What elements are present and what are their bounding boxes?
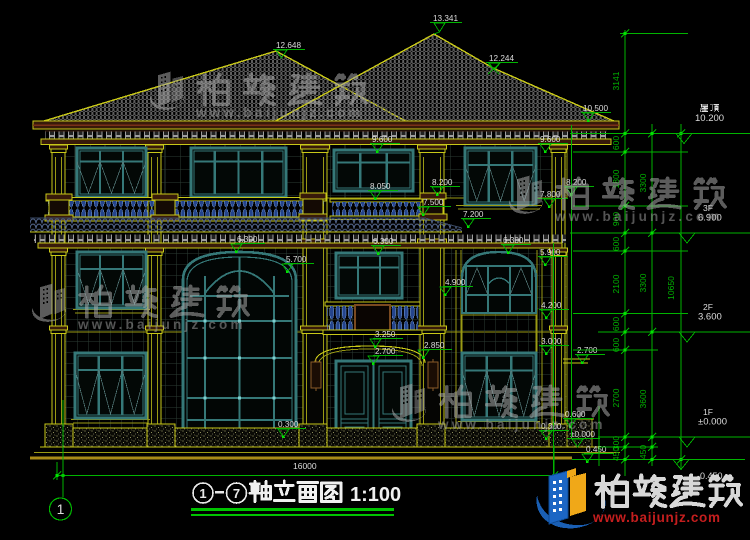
svg-text:8.050: 8.050 [370, 182, 391, 191]
svg-text:2F: 2F [703, 302, 713, 312]
svg-text:1: 1 [199, 486, 206, 501]
svg-text:www.baijunjz.com: www.baijunjz.com [554, 209, 723, 224]
svg-text:3141: 3141 [611, 71, 621, 90]
svg-text:600: 600 [611, 338, 621, 352]
svg-text:10.500: 10.500 [583, 104, 608, 113]
svg-text:1: 1 [57, 501, 65, 517]
svg-text:600: 600 [611, 136, 621, 150]
svg-text:6.300: 6.300 [237, 235, 258, 244]
svg-text:2.700: 2.700 [577, 346, 598, 355]
svg-text:0.300: 0.300 [278, 420, 299, 429]
svg-text:10.200: 10.200 [695, 113, 724, 124]
svg-text:2700: 2700 [611, 388, 621, 407]
svg-text:16000: 16000 [293, 461, 317, 471]
svg-text:6.300: 6.300 [503, 236, 524, 245]
svg-text:450: 450 [638, 445, 648, 459]
svg-text:2100: 2100 [611, 274, 621, 293]
svg-text:9.600: 9.600 [540, 135, 561, 144]
svg-text:1:100: 1:100 [350, 484, 401, 506]
svg-text:1F: 1F [703, 407, 713, 417]
svg-text:±0.000: ±0.000 [698, 417, 727, 428]
svg-text:12.244: 12.244 [489, 54, 514, 63]
svg-text:13.341: 13.341 [433, 14, 458, 23]
svg-text:3300: 3300 [638, 273, 648, 292]
svg-text:10650: 10650 [666, 276, 676, 300]
svg-text:7.500: 7.500 [423, 198, 444, 207]
svg-text:3.600: 3.600 [698, 312, 722, 323]
svg-text:www.baijunjz.com: www.baijunjz.com [77, 317, 246, 332]
svg-text:6.300: 6.300 [373, 237, 394, 246]
svg-text:450: 450 [611, 447, 621, 461]
svg-text:9.600: 9.600 [372, 135, 393, 144]
svg-text:www.baijunjz.com: www.baijunjz.com [195, 105, 364, 120]
svg-text:7.200: 7.200 [463, 210, 484, 219]
svg-text:600: 600 [611, 237, 621, 251]
svg-text:5.900: 5.900 [540, 248, 561, 257]
svg-text:www.baijunjz.com: www.baijunjz.com [592, 510, 721, 525]
svg-text:3.000: 3.000 [541, 337, 562, 346]
svg-text:2.700: 2.700 [375, 347, 396, 356]
svg-text:4.900: 4.900 [445, 278, 466, 287]
svg-text:3300: 3300 [638, 173, 648, 192]
svg-text:12.648: 12.648 [276, 41, 301, 50]
svg-text:7: 7 [233, 486, 240, 501]
svg-text:www.baijunjz.com: www.baijunjz.com [437, 417, 606, 432]
svg-text:3.250: 3.250 [375, 330, 396, 339]
svg-text:600: 600 [611, 317, 621, 331]
svg-text:2.850: 2.850 [424, 341, 445, 350]
svg-text:8.200: 8.200 [432, 178, 453, 187]
svg-text:3600: 3600 [638, 389, 648, 408]
svg-text:0.450: 0.450 [586, 445, 607, 454]
svg-text:5.700: 5.700 [286, 255, 307, 264]
svg-text:4.200: 4.200 [541, 301, 562, 310]
